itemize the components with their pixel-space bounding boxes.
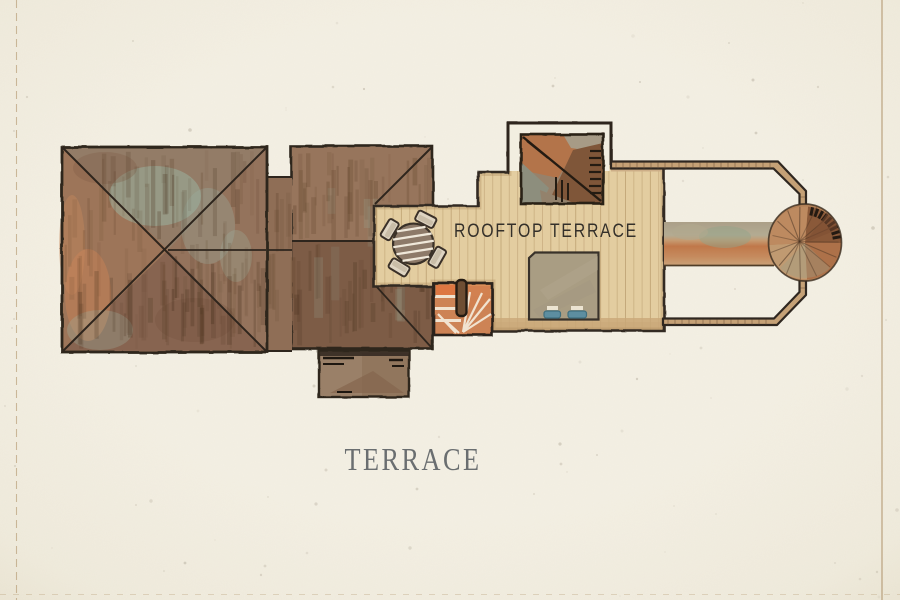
- svg-text:TERRACE: TERRACE: [345, 441, 482, 477]
- svg-text:ROOFTOP TERRACE: ROOFTOP TERRACE: [454, 220, 638, 242]
